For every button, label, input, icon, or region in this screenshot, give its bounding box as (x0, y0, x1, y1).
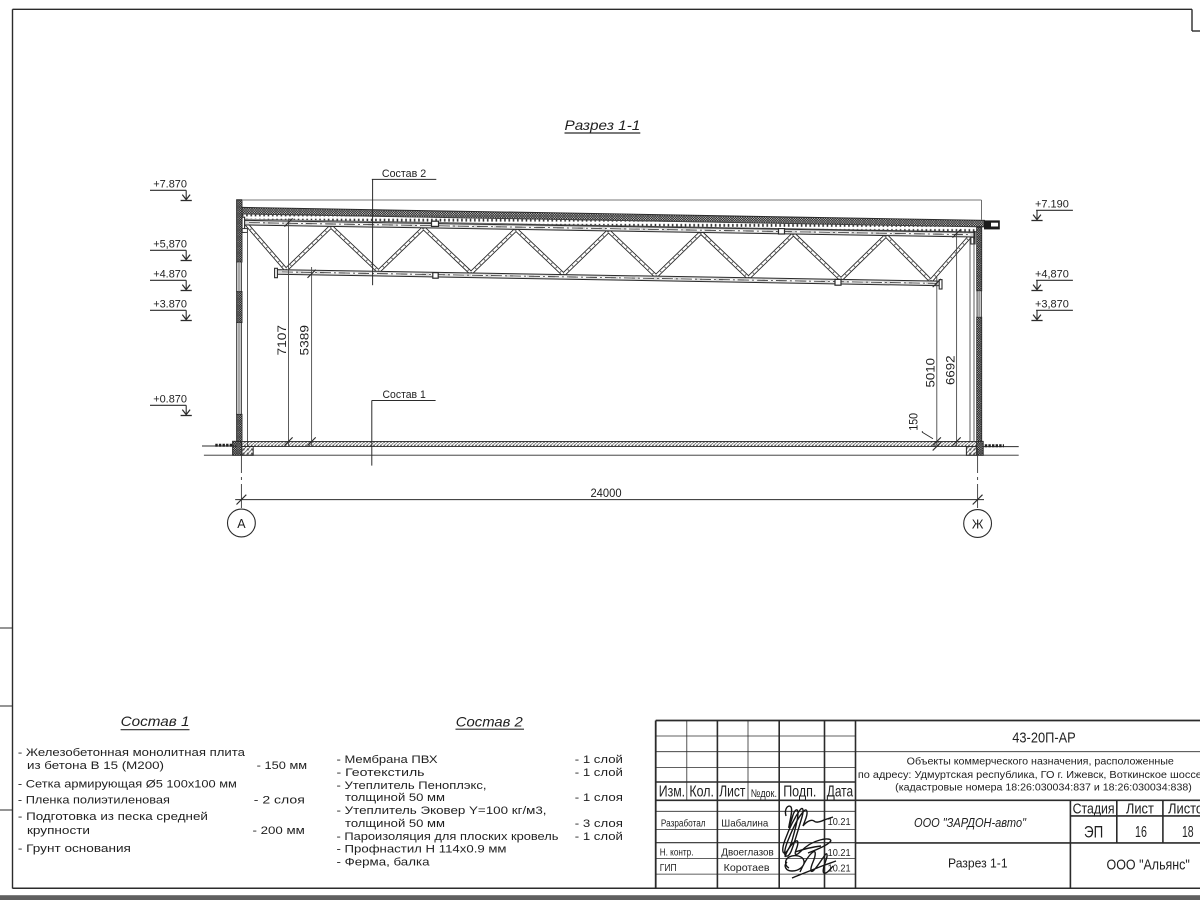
svg-text:18: 18 (1182, 824, 1194, 841)
svg-text:- 1 слой: - 1 слой (575, 754, 623, 766)
svg-text:+4.870: +4.870 (153, 269, 187, 281)
svg-text:ЭП: ЭП (1084, 822, 1103, 841)
svg-text:ГИП: ГИП (660, 863, 677, 874)
svg-text:- Профнастил Н 114х0.9 мм: - Профнастил Н 114х0.9 мм (337, 844, 507, 856)
svg-text:Состав 1: Состав 1 (383, 389, 426, 401)
svg-text:Состав 2: Состав 2 (456, 714, 523, 730)
svg-text:- 200 мм: - 200 мм (253, 825, 305, 837)
svg-text:+3.870: +3.870 (153, 299, 187, 311)
svg-text:- Утеплитель Эковер Y=100 кг/м: - Утеплитель Эковер Y=100 кг/м3, (337, 805, 547, 817)
svg-text:10.21: 10.21 (828, 817, 851, 828)
svg-text:+5,870: +5,870 (153, 239, 187, 251)
svg-text:- Железобетонная монолитная п: - Железобетонная монолитная плита (18, 747, 245, 759)
svg-text:- Пароизоляция для плоских кро: - Пароизоляция для плоских кровель (337, 831, 559, 843)
svg-text:Состав 2: Состав 2 (382, 168, 426, 180)
svg-text:5389: 5389 (298, 325, 312, 356)
svg-text:Дата: Дата (827, 784, 853, 801)
svg-text:крупности: крупности (27, 825, 90, 837)
svg-text:43-20П-АР: 43-20П-АР (1012, 729, 1075, 746)
svg-text:7107: 7107 (275, 325, 289, 356)
svg-text:Ж: Ж (972, 517, 984, 531)
svg-text:- Пленка полиэтиленовая: - Пленка полиэтиленовая (18, 794, 170, 806)
svg-text:- 1 слоя: - 1 слоя (575, 792, 623, 804)
svg-text:толщиной 50 мм: толщиной 50 мм (345, 792, 445, 804)
svg-text:Лист: Лист (719, 784, 746, 801)
svg-text:(кадастровые номера 18:26:0300: (кадастровые номера 18:26:030034:837 и 1… (895, 782, 1192, 793)
svg-text:Кол.: Кол. (689, 784, 714, 801)
svg-text:Н. контр.: Н. контр. (660, 847, 694, 858)
svg-text:А: А (237, 517, 246, 531)
svg-text:Стадия: Стадия (1073, 801, 1115, 817)
svg-text:Двоеглазов: Двоеглазов (721, 846, 774, 858)
svg-text:Разрез 1-1: Разрез 1-1 (948, 855, 1008, 870)
svg-text:Листов: Листов (1168, 801, 1200, 817)
svg-text:- Утеплитель Пеноплэкс,: - Утеплитель Пеноплэкс, (337, 780, 487, 792)
svg-text:- 2 слоя: - 2 слоя (254, 794, 305, 806)
svg-text:- 1 слой: - 1 слой (575, 767, 623, 779)
svg-text:Подп.: Подп. (783, 784, 816, 801)
svg-text:- Мембрана ПВХ: - Мембрана ПВХ (337, 754, 438, 766)
svg-text:+3,870: +3,870 (1035, 299, 1069, 311)
svg-text:Разрез 1-1: Разрез 1-1 (565, 117, 641, 133)
svg-text:по адресу: Удмуртская республи: по адресу: Удмуртская республика, ГО г. … (858, 769, 1200, 781)
svg-text:Коротаев: Коротаев (724, 862, 770, 874)
svg-text:+4,870: +4,870 (1035, 269, 1069, 281)
svg-text:- 3 слоя: - 3 слоя (575, 818, 623, 830)
svg-text:+7.870: +7.870 (153, 179, 187, 191)
svg-text:- Геотекстиль: - Геотекстиль (337, 767, 425, 779)
svg-text:толщиной 50 мм: толщиной 50 мм (345, 818, 445, 830)
svg-text:Лист: Лист (1126, 801, 1154, 817)
svg-text:- 150 мм: - 150 мм (257, 760, 307, 772)
svg-text:- Ферма, балка: - Ферма, балка (337, 857, 430, 869)
svg-text:Объекты коммерческого назначен: Объекты коммерческого назначения, распол… (907, 755, 1175, 767)
svg-text:24000: 24000 (590, 486, 621, 500)
svg-text:Разработал: Разработал (661, 817, 706, 829)
svg-text:- Грунт основания: - Грунт основания (18, 843, 131, 855)
svg-text:+7.190: +7.190 (1035, 199, 1069, 211)
svg-text:- Сетка армирующая Ø5 100х100: - Сетка армирующая Ø5 100х100 мм (18, 779, 237, 791)
svg-text:- Подготовка из песка средней: - Подготовка из песка средней (18, 811, 208, 823)
svg-text:ООО "Альянс": ООО "Альянс" (1107, 858, 1190, 874)
svg-text:Шабалина: Шабалина (721, 817, 768, 829)
svg-text:№док.: №док. (751, 788, 777, 800)
svg-text:из бетона В 15 (М200): из бетона В 15 (М200) (27, 760, 164, 772)
svg-text:Изм.: Изм. (659, 784, 685, 801)
svg-text:150: 150 (909, 413, 921, 431)
svg-text:+0.870: +0.870 (153, 394, 187, 406)
svg-text:ООО "ЗАРДОН-авто": ООО "ЗАРДОН-авто" (914, 816, 1026, 830)
svg-text:10.21: 10.21 (828, 848, 851, 859)
svg-text:6692: 6692 (943, 355, 957, 385)
svg-text:- 1 слой: - 1 слой (575, 831, 623, 843)
svg-text:5010: 5010 (924, 358, 938, 388)
svg-text:Состав 1: Состав 1 (121, 713, 190, 729)
svg-text:16: 16 (1135, 824, 1147, 841)
